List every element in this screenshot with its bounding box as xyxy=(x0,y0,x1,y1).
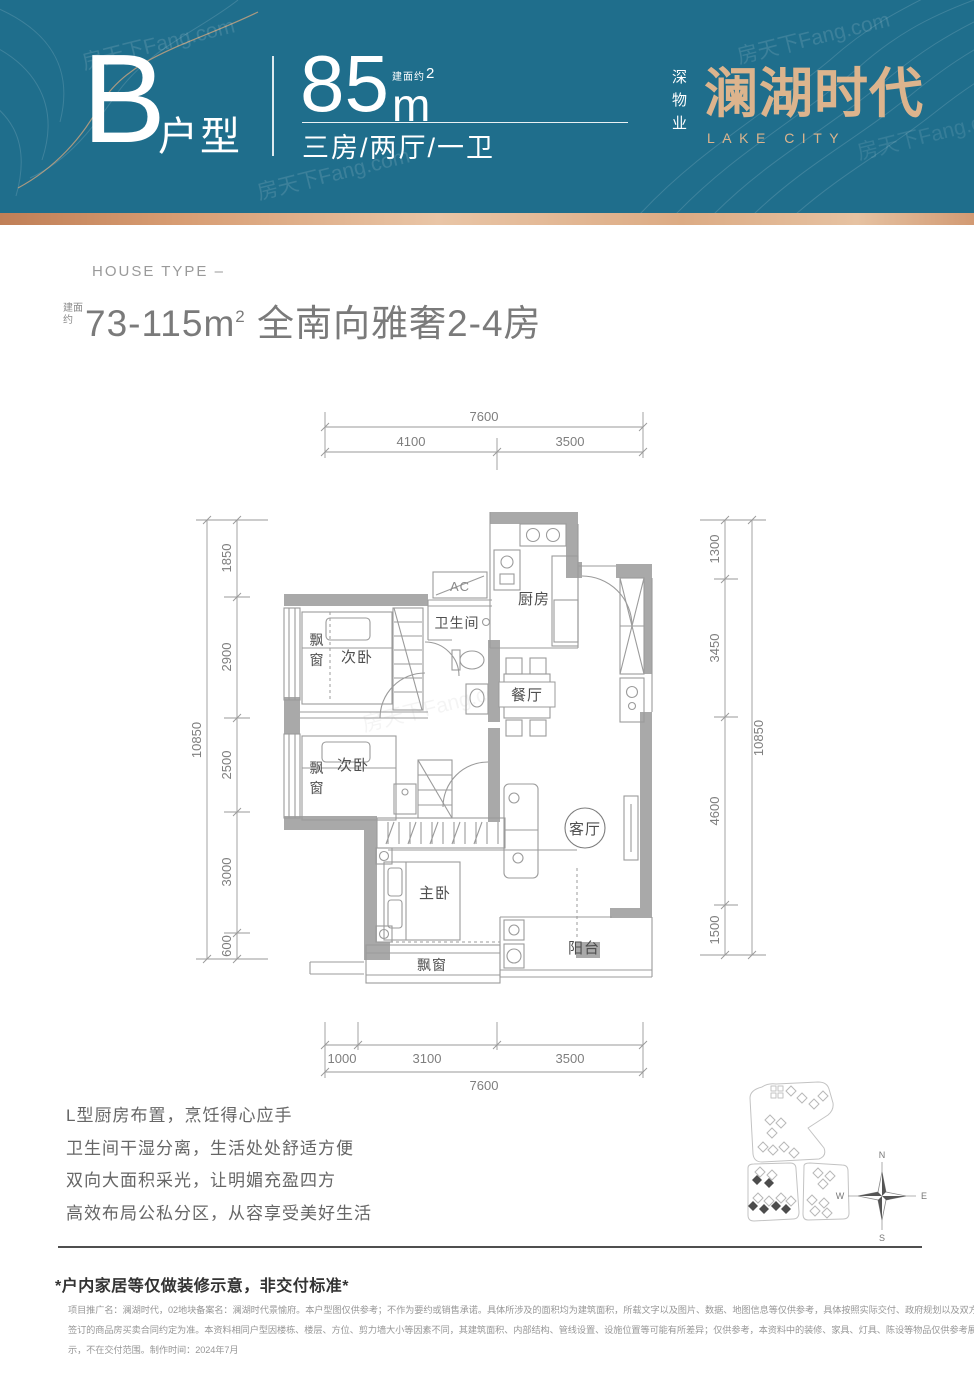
legal-disclaimer: 项目推广名：澜湖时代，02地块备案名：澜湖时代景愉府。本户型图仅供参考；不作为要… xyxy=(68,1300,964,1360)
site-buildings xyxy=(753,1086,835,1218)
poster-page: 房天下Fang.com 房天下Fang.com 房天下Fang.com 房天下F… xyxy=(0,0,974,1400)
dim-right-seg3: 4600 xyxy=(707,797,722,826)
room-label-bay-c: 飘窗 xyxy=(417,957,447,973)
compass-icon: N E S W xyxy=(836,1150,927,1243)
room-label-bay-b: 飘窗 xyxy=(309,758,324,798)
feature-list: L型厨房布置，烹饪得心应手 卫生间干湿分离，生活处处舒适方便 双向大面积采光，让… xyxy=(66,1100,372,1230)
site-buildings-highlighted xyxy=(748,1175,791,1214)
feature-item: 双向大面积采光，让明媚充盈四方 xyxy=(66,1165,372,1198)
disclaimer-line: 签订的商品房买卖合同约定为准。本资料相同户型因楼栋、楼层、方位、剪力墙大小等因素… xyxy=(68,1320,964,1340)
dim-right-seg1: 1300 xyxy=(707,535,722,564)
disclaimer-line: 项目推广名：澜湖时代，02地块备案名：澜湖时代景愉府。本户型图仅供参考；不作为要… xyxy=(68,1300,964,1320)
dim-top-seg1: 4100 xyxy=(397,434,426,449)
compass-w: W xyxy=(836,1191,845,1201)
disclaimer-line: 示，不在交付范围。制作时间：2024年7月 xyxy=(68,1340,964,1360)
dim-bottom-total: 7600 xyxy=(470,1078,499,1093)
room-label-bath: 卫生间 xyxy=(435,615,480,631)
dim-bottom-seg2: 3100 xyxy=(413,1051,442,1066)
room-label-balcony: 阳台 xyxy=(568,940,600,957)
dim-left-total: 10850 xyxy=(189,722,204,758)
room-label-bedroom-b: 次卧 xyxy=(337,757,369,774)
room-label-bay-a: 飘窗 xyxy=(309,630,324,670)
dim-right-seg4: 1500 xyxy=(707,916,722,945)
dim-left-seg5: 600 xyxy=(219,935,234,957)
dim-left-seg2: 2900 xyxy=(219,643,234,672)
footer-divider xyxy=(58,1246,922,1248)
compass-s: S xyxy=(879,1233,885,1243)
compass-e: E xyxy=(921,1191,927,1201)
dimension-labels: 7600 4100 3500 1000 3100 3500 7600 10850… xyxy=(189,409,766,1093)
dim-top-seg2: 3500 xyxy=(556,434,585,449)
room-label-master: 主卧 xyxy=(419,885,451,902)
dim-left-seg1: 1850 xyxy=(219,544,234,573)
feature-item: 高效布局公私分区，从容享受美好生活 xyxy=(66,1198,372,1231)
room-label-living: 客厅 xyxy=(569,821,601,838)
decoration-disclaimer-note: *户内家居等仅做装修示意，非交付标准* xyxy=(55,1272,349,1296)
room-label-ac: AC xyxy=(450,579,470,594)
compass-n: N xyxy=(879,1150,886,1160)
dim-right-total: 10850 xyxy=(751,720,766,756)
dim-bottom-seg3: 3500 xyxy=(556,1051,585,1066)
dim-top-total: 7600 xyxy=(470,409,499,424)
room-label-bedroom-a: 次卧 xyxy=(341,649,373,666)
dim-left-seg3: 2500 xyxy=(219,751,234,780)
room-label-dining: 餐厅 xyxy=(511,687,543,704)
dim-bottom-seg1: 1000 xyxy=(328,1051,357,1066)
dimension-lines xyxy=(196,412,766,1078)
room-label-kitchen: 厨房 xyxy=(518,591,550,608)
dim-left-seg4: 3000 xyxy=(219,858,234,887)
dim-right-seg2: 3450 xyxy=(707,634,722,663)
feature-item: L型厨房布置，烹饪得心应手 xyxy=(66,1100,372,1133)
feature-item: 卫生间干湿分离，生活处处舒适方便 xyxy=(66,1133,372,1166)
